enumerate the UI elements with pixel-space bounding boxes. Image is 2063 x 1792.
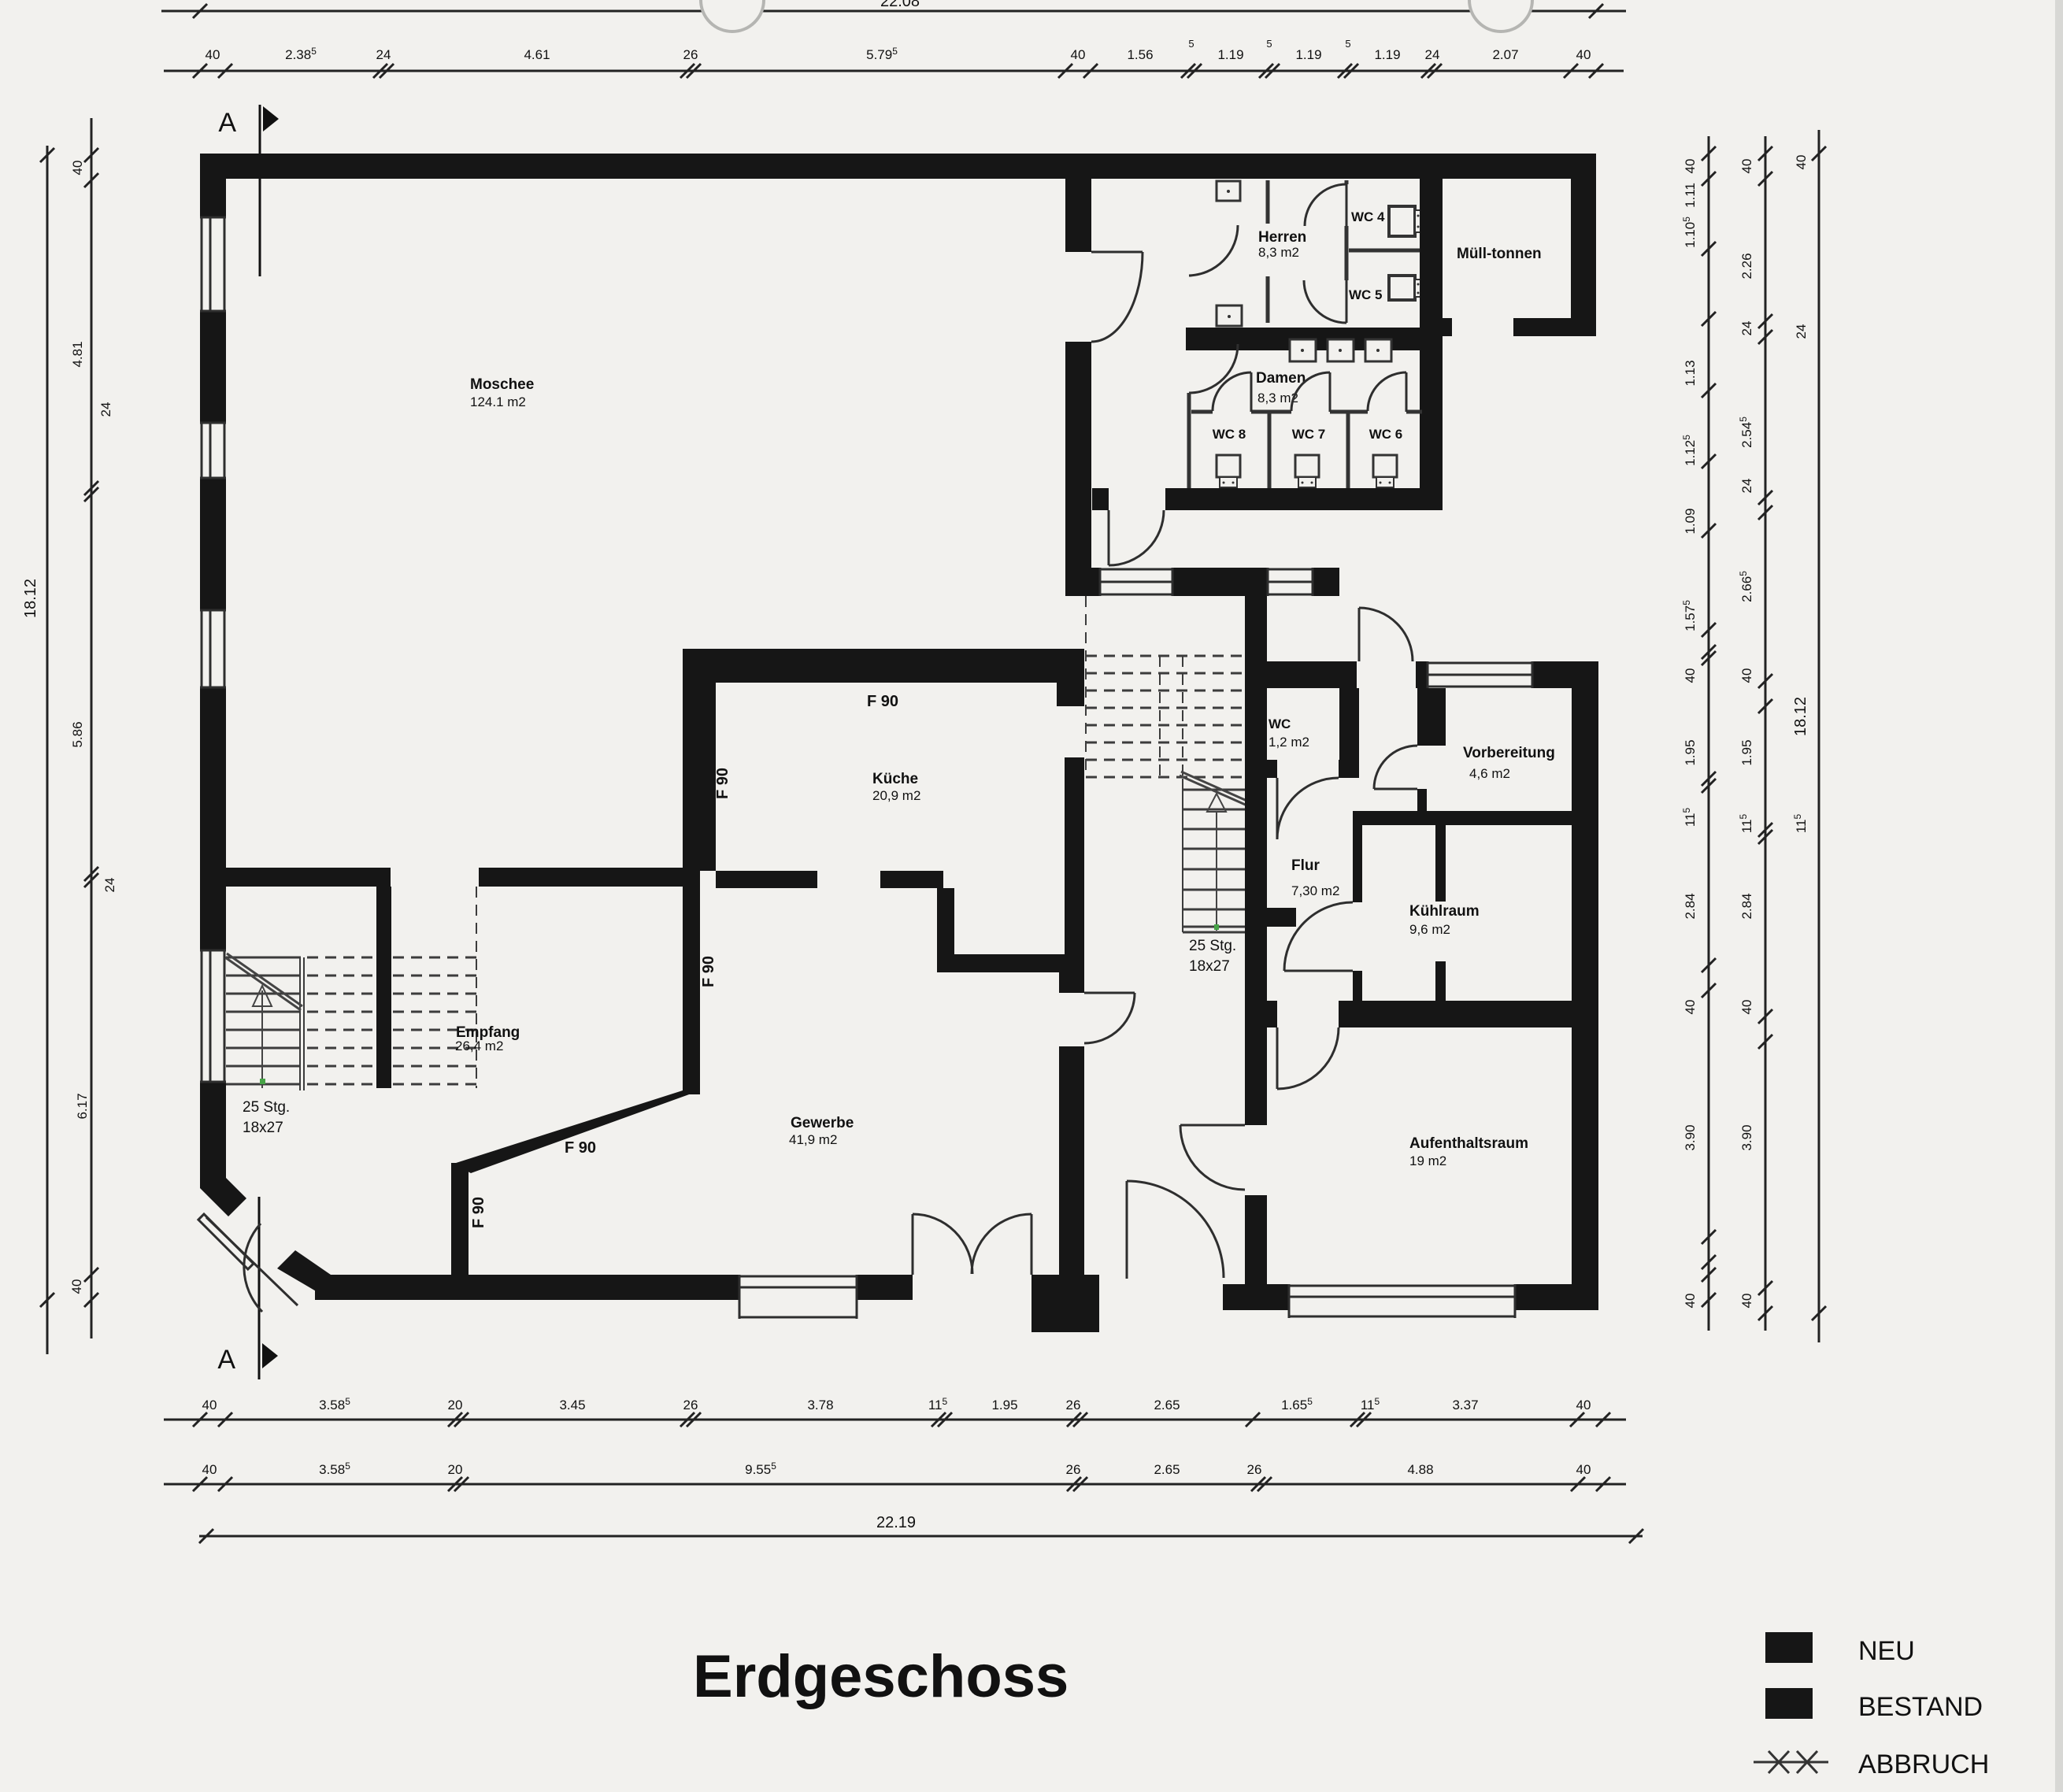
svg-text:1.95: 1.95 (1739, 739, 1754, 765)
svg-text:WC 6: WC 6 (1369, 427, 1403, 442)
svg-text:Vorbereitung: Vorbereitung (1463, 745, 1555, 761)
svg-text:20: 20 (448, 1398, 463, 1412)
svg-text:F 90: F 90 (867, 693, 898, 710)
svg-text:40: 40 (1071, 47, 1086, 62)
svg-text:1.19: 1.19 (1295, 47, 1321, 62)
svg-text:2.65: 2.65 (1154, 1462, 1180, 1477)
svg-text:40: 40 (70, 161, 85, 176)
svg-text:40: 40 (1683, 159, 1698, 174)
svg-text:1.19: 1.19 (1217, 47, 1243, 62)
svg-text:19 m2: 19 m2 (1409, 1153, 1446, 1168)
svg-text:Gewerbe: Gewerbe (791, 1115, 854, 1131)
svg-text:NEU: NEU (1858, 1636, 1915, 1666)
svg-text:40: 40 (1739, 159, 1754, 174)
svg-text:WC 4: WC 4 (1351, 209, 1385, 224)
svg-text:5: 5 (1266, 38, 1272, 50)
svg-text:22.19: 22.19 (876, 1514, 916, 1531)
svg-text:F 90: F 90 (714, 768, 731, 799)
svg-text:WC 8: WC 8 (1213, 427, 1246, 442)
svg-text:40: 40 (1739, 1000, 1754, 1015)
svg-text:20,9 m2: 20,9 m2 (872, 788, 920, 803)
svg-text:1.09: 1.09 (1683, 508, 1698, 534)
svg-text:26: 26 (683, 47, 698, 62)
svg-text:WC: WC (1269, 716, 1291, 731)
svg-text:26: 26 (683, 1398, 698, 1412)
svg-text:4.81: 4.81 (70, 341, 85, 367)
svg-text:24: 24 (1739, 321, 1754, 336)
svg-text:3.90: 3.90 (1739, 1124, 1754, 1150)
svg-text:3.37: 3.37 (1452, 1398, 1478, 1412)
svg-text:18.12: 18.12 (1792, 697, 1809, 736)
svg-text:1.11: 1.11 (1683, 183, 1698, 208)
svg-text:Herren: Herren (1258, 229, 1306, 246)
svg-text:40: 40 (1576, 1462, 1591, 1477)
svg-text:WC 7: WC 7 (1292, 427, 1326, 442)
svg-text:A: A (217, 1345, 235, 1375)
svg-text:3.45: 3.45 (559, 1398, 585, 1412)
svg-text:40: 40 (1576, 47, 1591, 62)
svg-text:40: 40 (1683, 1000, 1698, 1015)
svg-text:24: 24 (98, 402, 113, 417)
svg-text:40: 40 (1739, 1294, 1754, 1309)
svg-text:2.84: 2.84 (1683, 893, 1698, 919)
svg-text:8,3 m2: 8,3 m2 (1258, 245, 1299, 260)
svg-text:40: 40 (202, 1462, 217, 1477)
svg-text:4.88: 4.88 (1407, 1462, 1433, 1477)
svg-text:7,30 m2: 7,30 m2 (1291, 883, 1339, 898)
svg-text:WC 5: WC 5 (1349, 287, 1383, 302)
svg-text:26: 26 (1066, 1462, 1081, 1477)
svg-text:40: 40 (1683, 1294, 1698, 1309)
svg-text:Moschee: Moschee (470, 376, 534, 393)
svg-text:25 Stg.: 25 Stg. (1189, 938, 1236, 954)
svg-text:4,6 m2: 4,6 m2 (1469, 766, 1510, 781)
svg-text:18x27: 18x27 (243, 1120, 283, 1136)
svg-text:24: 24 (1425, 47, 1440, 62)
svg-text:40: 40 (69, 1279, 84, 1294)
svg-text:26: 26 (1066, 1398, 1081, 1412)
svg-text:18x27: 18x27 (1189, 958, 1230, 975)
svg-text:1,2 m2: 1,2 m2 (1269, 735, 1309, 750)
svg-text:24: 24 (376, 47, 391, 62)
svg-text:1.95: 1.95 (991, 1398, 1017, 1412)
svg-text:Erdgeschoss: Erdgeschoss (693, 1643, 1069, 1710)
svg-text:1.13: 1.13 (1683, 360, 1698, 386)
svg-text:Damen: Damen (1256, 370, 1306, 387)
svg-text:2.26: 2.26 (1739, 253, 1754, 279)
svg-text:F 90: F 90 (470, 1197, 487, 1228)
svg-text:5.86: 5.86 (70, 721, 85, 747)
svg-text:Kühlraum: Kühlraum (1409, 903, 1480, 920)
svg-text:5: 5 (1345, 38, 1350, 50)
svg-text:40: 40 (1739, 668, 1754, 683)
svg-text:F 90: F 90 (565, 1139, 596, 1157)
svg-text:4.61: 4.61 (524, 47, 550, 62)
svg-text:2.84: 2.84 (1739, 893, 1754, 919)
svg-text:6.17: 6.17 (75, 1093, 90, 1119)
svg-text:24: 24 (1794, 324, 1809, 339)
svg-text:2.07: 2.07 (1492, 47, 1518, 62)
svg-text:5: 5 (1188, 38, 1194, 50)
svg-text:1.19: 1.19 (1374, 47, 1400, 62)
svg-text:26,4 m2: 26,4 m2 (455, 1039, 503, 1053)
svg-text:40: 40 (202, 1398, 217, 1412)
svg-text:A: A (218, 108, 236, 138)
svg-text:18.12: 18.12 (22, 579, 39, 618)
svg-text:3.90: 3.90 (1683, 1124, 1698, 1150)
svg-text:9,6 m2: 9,6 m2 (1409, 922, 1450, 937)
svg-text:40: 40 (1576, 1398, 1591, 1412)
svg-text:25 Stg.: 25 Stg. (243, 1099, 290, 1116)
svg-text:Aufenthaltsraum: Aufenthaltsraum (1409, 1135, 1528, 1152)
svg-text:24: 24 (102, 878, 117, 893)
svg-text:ABBRUCH: ABBRUCH (1858, 1749, 1989, 1779)
svg-text:20: 20 (448, 1462, 463, 1477)
svg-text:Küche: Küche (872, 771, 918, 787)
svg-text:F 90: F 90 (700, 956, 717, 987)
svg-text:Flur: Flur (1291, 857, 1320, 874)
svg-text:Müll-tonnen: Müll-tonnen (1457, 246, 1542, 262)
svg-text:1.56: 1.56 (1127, 47, 1153, 62)
svg-text:22.08: 22.08 (880, 0, 920, 10)
svg-text:24: 24 (1739, 479, 1754, 494)
svg-text:124.1 m2: 124.1 m2 (470, 394, 526, 409)
svg-text:BESTAND: BESTAND (1858, 1692, 1983, 1722)
svg-text:3.78: 3.78 (807, 1398, 833, 1412)
svg-text:40: 40 (206, 47, 220, 62)
svg-text:2.65: 2.65 (1154, 1398, 1180, 1412)
svg-text:26: 26 (1247, 1462, 1262, 1477)
svg-text:1.95: 1.95 (1683, 739, 1698, 765)
svg-text:41,9 m2: 41,9 m2 (789, 1132, 837, 1147)
svg-text:40: 40 (1683, 668, 1698, 683)
svg-text:40: 40 (1794, 155, 1809, 170)
